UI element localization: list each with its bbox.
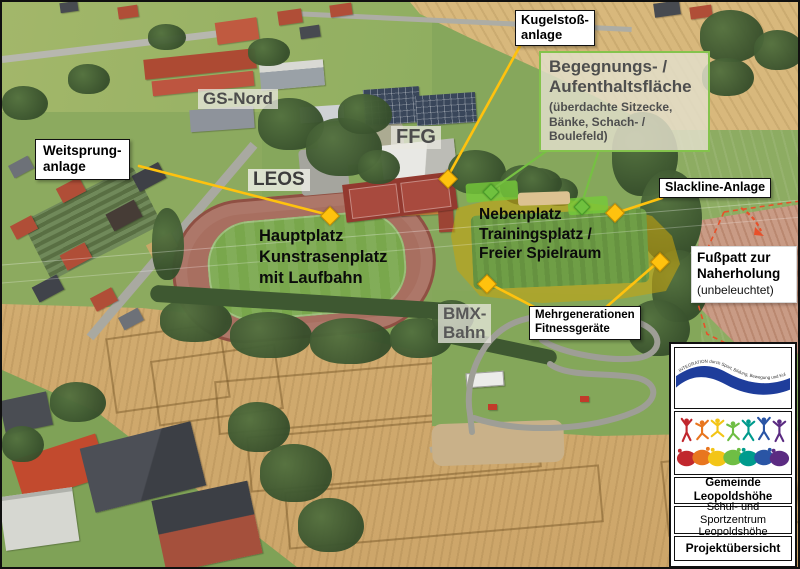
legend-authority: Gemeinde Leopoldshöhe — [674, 477, 792, 504]
label-begegnungsflaeche: Begegnungs- / Aufenthaltsfläche (überdac… — [539, 51, 710, 152]
label-line: Nebenplatz — [479, 205, 601, 225]
jumping-figures — [682, 417, 785, 441]
label-line: (überdachte Sitzecke, — [549, 100, 700, 115]
label-line: Fußpatt zur — [697, 250, 791, 266]
car — [580, 396, 589, 402]
label-hauptplatz: Hauptplatz Kunstrasenplatz mit Laufbahn — [259, 226, 387, 289]
sand-strip — [518, 191, 570, 206]
label-bmx-bahn: BMX- Bahn — [438, 304, 491, 343]
legend-sheet-line: Projektübersicht — [686, 542, 781, 556]
tree — [50, 382, 106, 422]
tree — [152, 208, 184, 280]
tree — [338, 94, 392, 134]
tree — [248, 38, 290, 66]
label-line: Kunstrasenplatz — [259, 247, 387, 268]
tree — [358, 150, 400, 184]
label-line: Aufenthaltsfläche — [549, 77, 700, 97]
label-slackline-anlage: Slackline-Anlage — [659, 178, 771, 198]
building-school-gs-nord — [189, 106, 254, 132]
car — [488, 404, 497, 410]
paint-splashes — [677, 447, 789, 466]
tree — [2, 86, 48, 120]
label-gs-nord: GS-Nord — [198, 89, 278, 109]
jumping-figures-logo — [675, 414, 791, 472]
label-line: Hauptplatz — [259, 226, 387, 247]
label-line: Boulefeld) — [549, 129, 700, 144]
tree — [2, 426, 44, 462]
tree — [298, 498, 364, 552]
label-line: Freier Spielraum — [479, 244, 601, 264]
label-line: mit Laufbahn — [259, 268, 387, 289]
label-line: Begegnungs- / — [549, 57, 700, 77]
label-line: Naherholung — [697, 266, 791, 282]
tennis-court — [349, 183, 400, 219]
tree — [68, 64, 110, 94]
building-garage — [0, 487, 79, 551]
label-nebenplatz: Nebenplatz Trainingsplatz / Freier Spiel… — [479, 205, 601, 264]
tree — [228, 402, 290, 452]
building-ffg-solar — [415, 92, 477, 126]
legend-authority-line: Gemeinde — [705, 477, 761, 490]
label-weitsprunganlage: Weitsprung- anlage — [35, 139, 130, 180]
label-ffg: FFG — [391, 126, 441, 149]
label-line: Kugelstoß- — [521, 12, 589, 27]
label-leos: LEOS — [248, 169, 310, 191]
tree — [310, 318, 392, 364]
label-fitnessgeraete: Mehrgenerationen Fitnessgeräte — [529, 306, 641, 340]
bmx-dirt-patch — [431, 420, 564, 467]
label-line: Mehrgenerationen — [535, 309, 635, 323]
label-line: anlage — [521, 27, 589, 42]
legend-title-block: INTEGRATION durch Sport, Bildung, Bewegu… — [669, 342, 797, 568]
tree — [148, 24, 186, 50]
legend-project-title: Schul- und Sportzentrum Leopoldshöhe — [674, 506, 792, 534]
label-line: BMX- — [443, 304, 486, 323]
tree — [230, 312, 312, 358]
tree — [260, 444, 332, 502]
label-line: (unbeleuchtet) — [697, 283, 791, 298]
truck — [466, 371, 505, 389]
label-line: Bahn — [443, 323, 486, 342]
project-overview-sheet: Kugelstoß- anlage Begegnungs- / Aufentha… — [0, 0, 800, 569]
label-line: Trainingsplatz / — [479, 225, 601, 245]
legend-project-line: Schul- und Sportzentrum — [676, 501, 790, 526]
label-line: Weitsprung- — [43, 143, 122, 159]
label-fusspatt: Fußpatt zur Naherholung (unbeleuchtet) — [691, 246, 797, 303]
legend-sheet-title: Projektübersicht — [674, 536, 792, 561]
legend-logo-figures — [674, 411, 792, 475]
label-kugelstossanlage: Kugelstoß- anlage — [515, 10, 595, 46]
integration-wave-logo: INTEGRATION durch Sport, Bildung, Bewegu… — [675, 349, 791, 407]
label-line: anlage — [43, 159, 122, 175]
tree — [754, 30, 800, 70]
label-line: Bänke, Schach- / — [549, 115, 700, 130]
legend-logo-integration: INTEGRATION durch Sport, Bildung, Bewegu… — [674, 347, 792, 409]
label-line: Fitnessgeräte — [535, 323, 635, 337]
